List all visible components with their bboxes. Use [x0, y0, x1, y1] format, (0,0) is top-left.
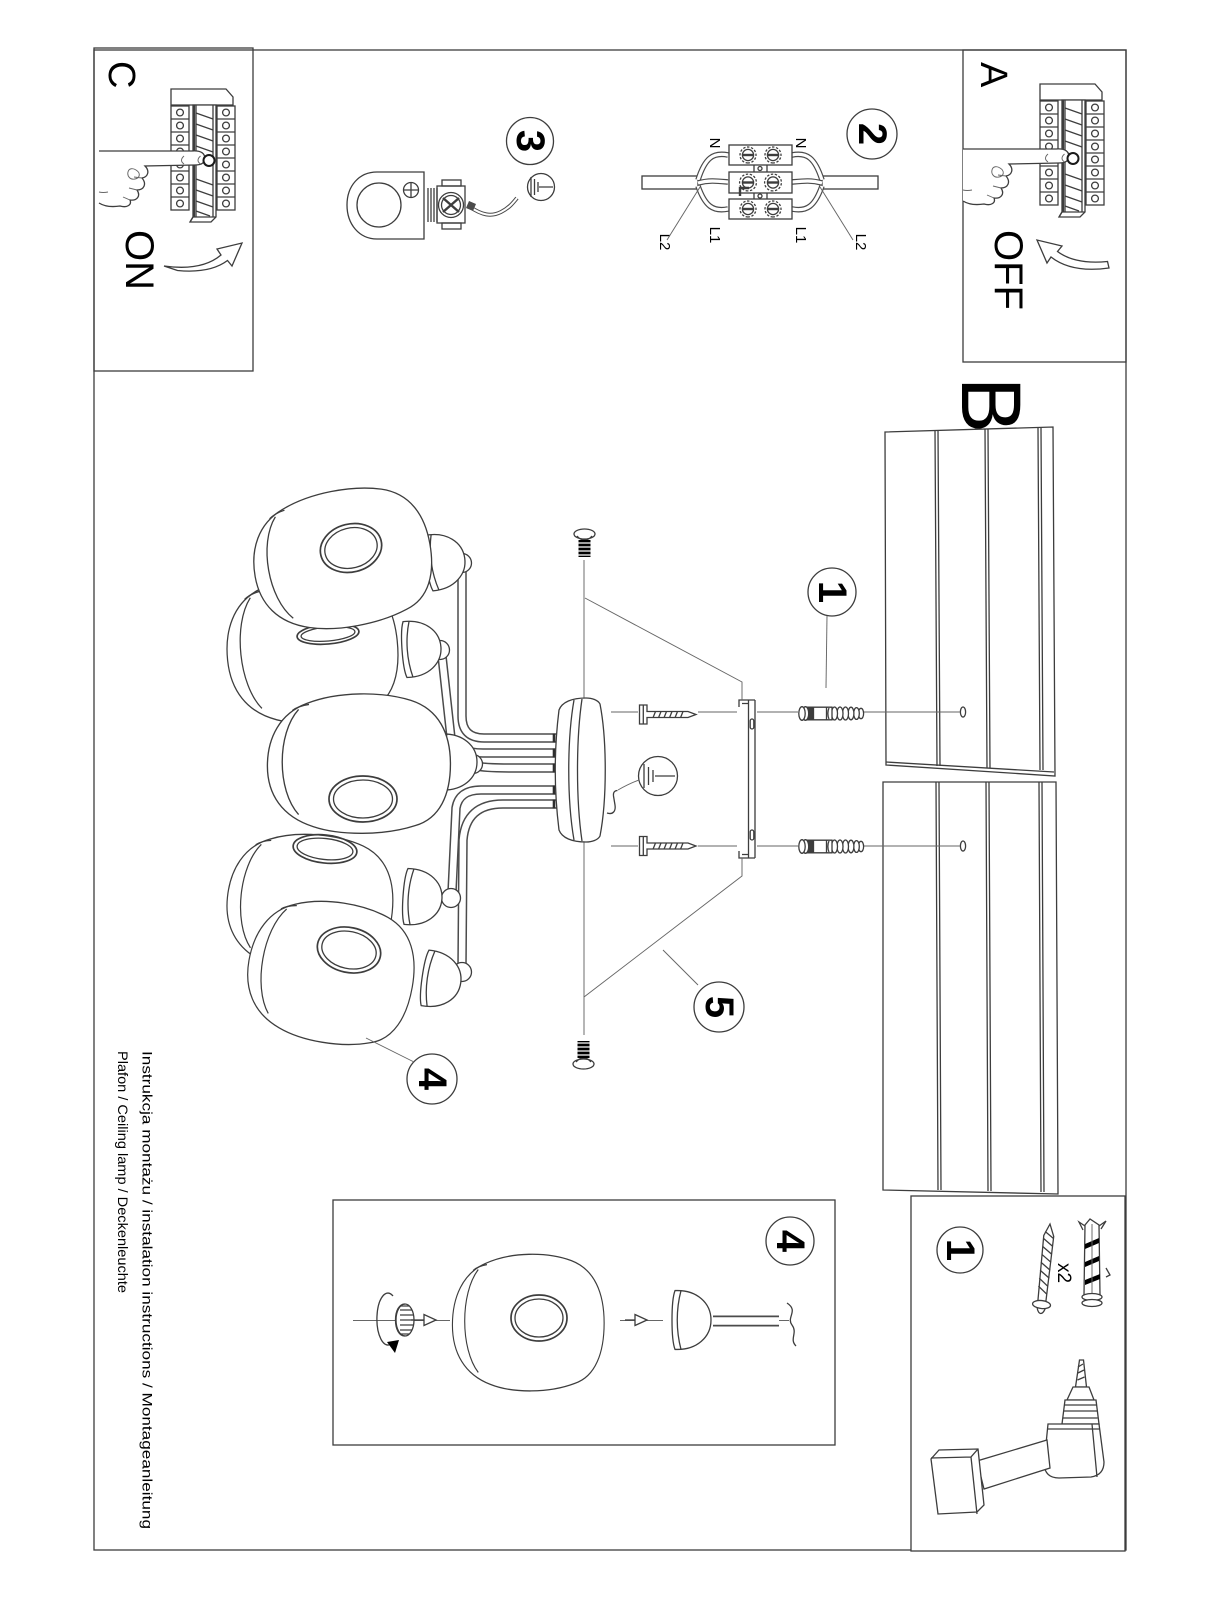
svg-text:1: 1 — [810, 581, 854, 603]
svg-text:2: 2 — [850, 123, 894, 145]
svg-text:Plafon / Ceiling lamp / Decken: Plafon / Ceiling lamp / Deckenleuchte — [115, 1051, 131, 1293]
svg-text:4: 4 — [768, 1230, 812, 1253]
svg-text:ON: ON — [117, 230, 161, 290]
svg-text:5: 5 — [697, 996, 741, 1018]
svg-text:OFF: OFF — [986, 230, 1030, 310]
svg-text:B: B — [944, 377, 1038, 433]
svg-text:x2: x2 — [1053, 1263, 1074, 1283]
svg-text:Instrukcja montażu / instalati: Instrukcja montażu / instalation instruc… — [140, 1051, 156, 1529]
svg-text:L1: L1 — [706, 227, 723, 244]
svg-text:C: C — [100, 61, 142, 88]
svg-text:N: N — [706, 138, 723, 149]
svg-text:3: 3 — [508, 130, 552, 152]
svg-text:A: A — [972, 62, 1014, 88]
svg-text:L2: L2 — [852, 234, 869, 251]
svg-text:N: N — [792, 138, 809, 149]
svg-text:L2: L2 — [656, 234, 673, 251]
svg-text:L1: L1 — [792, 227, 809, 244]
svg-text:4: 4 — [410, 1068, 454, 1091]
svg-text:1: 1 — [938, 1239, 982, 1261]
